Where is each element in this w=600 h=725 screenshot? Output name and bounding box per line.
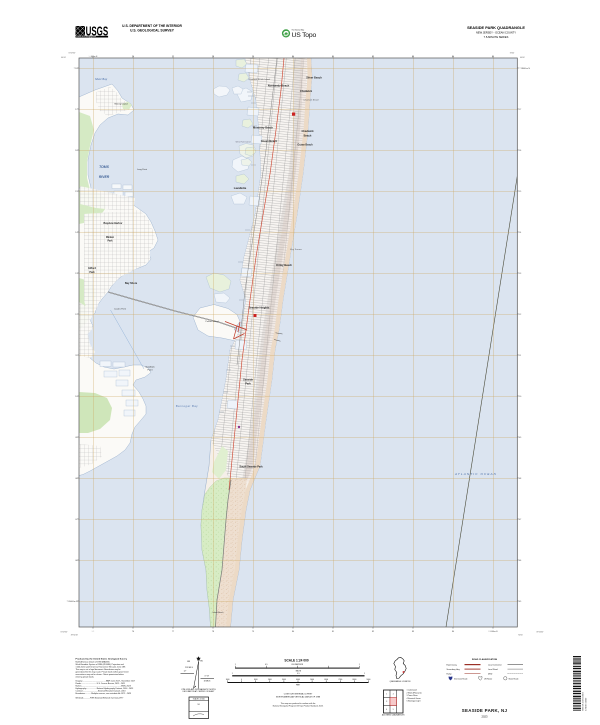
svg-text:2000: 2000 — [268, 679, 272, 681]
svg-text:1: 1 — [386, 694, 387, 696]
svg-text:5000: 5000 — [310, 679, 314, 681]
svg-text:83: 83 — [412, 56, 415, 58]
svg-text:4: 4 — [386, 709, 387, 711]
svg-text:10: 10 — [519, 396, 522, 398]
svg-text:81: 81 — [332, 631, 335, 633]
svg-text:This map was produced to confo: This map was produced to conform with th… — [281, 702, 316, 705]
svg-text:3000: 3000 — [282, 679, 286, 681]
svg-text:Lavallette: Lavallette — [234, 186, 247, 190]
svg-text:0: 0 — [241, 679, 242, 681]
svg-text:4000: 4000 — [296, 679, 300, 681]
svg-text:West Point Island: West Point Island — [236, 141, 252, 144]
svg-text:ROAD CLASSIFICATION: ROAD CLASSIFICATION — [472, 658, 498, 661]
svg-text:3 Toms River: 3 Toms River — [407, 694, 418, 697]
svg-text:U.S. DEPARTMENT OF THE INTERIO: U.S. DEPARTMENT OF THE INTERIOR — [122, 24, 182, 28]
svg-text:17: 17 — [519, 109, 522, 111]
svg-text:FEET: FEET — [296, 685, 300, 687]
svg-text:1: 1 — [364, 673, 365, 675]
svg-text:ATLANTIC OCEAN: ATLANTIC OCEAN — [454, 472, 497, 476]
svg-text:79: 79 — [252, 631, 255, 633]
svg-text:74°00': 74°00' — [510, 53, 515, 55]
svg-text:77: 77 — [172, 56, 175, 58]
svg-text:14: 14 — [519, 232, 522, 234]
svg-text:16: 16 — [519, 150, 522, 152]
svg-text:5 Barnegat Light: 5 Barnegat Light — [407, 700, 421, 703]
svg-text:SEASIDE PARK, NJ: SEASIDE PARK, NJ — [462, 708, 508, 713]
svg-text:Ocean Beach: Ocean Beach — [297, 144, 313, 147]
svg-text:DECLINATION AT CENTER OF SHEET: DECLINATION AT CENTER OF SHEET — [183, 690, 216, 693]
svg-text:84: 84 — [452, 631, 455, 633]
svg-text:Beach: Beach — [304, 134, 312, 138]
svg-text:0° 59´: 0° 59´ — [205, 674, 210, 677]
svg-text:Gilford: Gilford — [88, 267, 96, 270]
svg-text:Bayview Harbor: Bayview Harbor — [104, 222, 123, 225]
svg-text:213 MILS: 213 MILS — [185, 667, 193, 669]
svg-text:74°00': 74°00' — [518, 635, 523, 637]
svg-text:05: 05 — [519, 601, 522, 603]
svg-text:78: 78 — [212, 631, 215, 633]
svg-text:Barnegat Bay: Barnegat Bay — [176, 405, 198, 408]
svg-text:Island Beach: Island Beach — [213, 612, 224, 614]
svg-text:KILOMETERS: KILOMETERS — [292, 664, 304, 666]
svg-text:Produced by the United States: Produced by the United States Geological… — [76, 658, 128, 661]
svg-text:State Route: State Route — [509, 677, 519, 680]
svg-text:78: 78 — [212, 56, 215, 58]
svg-text:Pelican Island: Pelican Island — [206, 321, 220, 323]
svg-text:83: 83 — [412, 631, 415, 633]
svg-text:Goodluck: Goodluck — [145, 367, 155, 369]
svg-text:76: 76 — [132, 631, 135, 633]
svg-text:Monterey Beach: Monterey Beach — [253, 126, 273, 130]
svg-text:81: 81 — [332, 56, 335, 58]
svg-text:SCALE 1:24 000: SCALE 1:24 000 — [284, 659, 308, 663]
svg-text:80: 80 — [292, 631, 295, 633]
svg-text:12: 12 — [519, 314, 522, 316]
svg-text:3: 3 — [386, 701, 387, 703]
svg-text:0.5: 0.5 — [297, 673, 300, 675]
svg-text:CONTOUR INTERVAL 10 FEET: CONTOUR INTERVAL 10 FEET — [284, 693, 313, 696]
svg-text:TOMS: TOMS — [99, 165, 109, 169]
svg-text:80: 80 — [292, 56, 295, 58]
svg-text:77: 77 — [172, 631, 175, 633]
svg-text:07: 07 — [519, 519, 522, 521]
svg-text:Money Island: Money Island — [114, 103, 128, 105]
svg-text:40°00': 40°00' — [520, 57, 525, 59]
svg-text:Bay Shore: Bay Shore — [125, 282, 138, 285]
svg-text:Wetlands.............FWS Natio: Wetlands.............FWS National Wetlan… — [76, 697, 124, 700]
svg-text:Ramp: Ramp — [447, 673, 452, 675]
svg-text:Local Connector: Local Connector — [488, 663, 502, 666]
svg-text:Seaside: Seaside — [243, 378, 253, 382]
svg-text:Secondary Hwy: Secondary Hwy — [447, 668, 460, 671]
svg-text:Minden: Minden — [106, 237, 115, 239]
svg-text:Silver Bay: Silver Bay — [95, 77, 108, 81]
svg-text:7000: 7000 — [338, 679, 342, 681]
svg-text:13: 13 — [519, 273, 522, 275]
svg-text:40°00': 40°00' — [61, 57, 66, 59]
svg-text:NEW JERSEY - OCEAN COUNTY: NEW JERSEY - OCEAN COUNTY — [476, 31, 516, 35]
svg-text:SEASIDE PARK QUADRANGLE: SEASIDE PARK QUADRANGLE — [467, 25, 525, 30]
svg-text:Seaside Heights: Seaside Heights — [249, 306, 270, 310]
svg-text:12°: 12° — [184, 671, 187, 673]
svg-text:National Geospatial Program US: National Geospatial Program US Topo Prod… — [273, 704, 324, 707]
svg-text:74°07'30": 74°07'30" — [60, 632, 68, 634]
svg-text:RIVER: RIVER — [99, 175, 110, 179]
svg-text:⁵⁸⁵000m E: ⁵⁸⁵000m E — [488, 631, 498, 633]
svg-text:⁵⁷⁵: ⁵⁷⁵ — [92, 631, 95, 633]
svg-text:Boundaries............Multiple: Boundaries............Multiple sources; … — [76, 692, 132, 695]
svg-text:1: 1 — [232, 673, 233, 675]
svg-text:US Route: US Route — [484, 677, 492, 680]
svg-text:MILES: MILES — [296, 671, 302, 673]
svg-text:US Topo: US Topo — [292, 32, 317, 39]
svg-text:82: 82 — [372, 631, 375, 633]
svg-text:9 781607 560000: 9 781607 560000 — [586, 698, 588, 711]
svg-text:Chadwick Beach Island: Chadwick Beach Island — [248, 79, 270, 81]
svg-text:39°52'30": 39°52'30" — [71, 635, 79, 637]
svg-text:Expressway: Expressway — [447, 663, 457, 666]
svg-text:84: 84 — [452, 56, 455, 58]
svg-text:⁴⁴18000m N: ⁴⁴18000m N — [519, 68, 531, 70]
svg-text:82: 82 — [372, 56, 375, 58]
svg-text:2 Brick (Pleasant): 2 Brick (Pleasant) — [407, 691, 422, 694]
svg-text:ISBN 978-1-60756-000-0: ISBN 978-1-60756-000-0 — [583, 692, 585, 711]
svg-text:2: 2 — [393, 694, 394, 696]
svg-text:QUADRANGLE LOCATION: QUADRANGLE LOCATION — [390, 680, 412, 683]
svg-text:Chadwick: Chadwick — [301, 129, 314, 133]
svg-text:Interstate Route: Interstate Route — [454, 677, 467, 680]
svg-text:Park: Park — [245, 382, 251, 386]
svg-text:7.5-MINUTE SERIES: 7.5-MINUTE SERIES — [484, 35, 509, 39]
svg-text:4 Keswick Grove: 4 Keswick Grove — [407, 697, 421, 700]
svg-text:4WD: 4WD — [488, 673, 493, 675]
svg-text:Point: Point — [148, 369, 153, 372]
svg-text:Coates Point: Coates Point — [114, 308, 126, 311]
svg-text:39°52'30": 39°52'30" — [536, 632, 544, 634]
svg-text:NORTH AMERICAN VERTICAL DATUM: NORTH AMERICAN VERTICAL DATUM OF 1988 — [276, 696, 321, 699]
svg-text:South Seaside Park: South Seaside Park — [239, 466, 263, 469]
svg-text:1 Lakewood: 1 Lakewood — [407, 690, 417, 692]
svg-text:18 MILS: 18 MILS — [204, 680, 211, 682]
svg-text:1: 1 — [235, 664, 236, 666]
svg-text:Bay Terrace: Bay Terrace — [290, 249, 302, 251]
svg-text:Long Point: Long Point — [137, 168, 147, 171]
svg-text:⁴⁴05000m N: ⁴⁴05000m N — [67, 601, 79, 603]
svg-text:1: 1 — [359, 664, 360, 666]
svg-text:Normandy Beach: Normandy Beach — [268, 84, 290, 88]
svg-text:Ocean Beach: Ocean Beach — [261, 139, 278, 143]
svg-text:Chadwick Beach: Chadwick Beach — [303, 100, 319, 102]
svg-text:Park: Park — [89, 271, 95, 274]
svg-text:15: 15 — [519, 191, 522, 193]
svg-text:85: 85 — [492, 56, 495, 58]
svg-text:06: 06 — [519, 560, 522, 562]
svg-text:8000: 8000 — [353, 679, 357, 681]
svg-text:entering private lands.: entering private lands. — [76, 676, 95, 679]
svg-text:U.S. GEOLOGICAL SURVEY: U.S. GEOLOGICAL SURVEY — [130, 29, 175, 33]
svg-text:1000: 1000 — [226, 679, 230, 681]
svg-text:GN: GN — [200, 661, 203, 663]
svg-text:ADJOINING QUADRANGLES: ADJOINING QUADRANGLES — [382, 714, 405, 717]
svg-text:Silver Beach: Silver Beach — [306, 76, 322, 80]
svg-text:9000: 9000 — [367, 679, 371, 681]
svg-text:Park: Park — [108, 241, 114, 243]
svg-text:6000: 6000 — [324, 679, 328, 681]
svg-text:Chadwick: Chadwick — [300, 89, 313, 93]
svg-text:76: 76 — [132, 56, 135, 58]
svg-text:NJ: NJ — [198, 704, 200, 706]
svg-text:09: 09 — [519, 437, 522, 439]
svg-text:5: 5 — [393, 709, 394, 711]
svg-text:0.5: 0.5 — [265, 664, 268, 666]
svg-text:79: 79 — [252, 56, 255, 58]
svg-text:MN: MN — [187, 661, 190, 663]
svg-text:⁵⁷⁵000m E: ⁵⁷⁵000m E — [89, 56, 99, 58]
svg-text:Local Road: Local Road — [488, 669, 498, 671]
svg-text:Ortley Beach: Ortley Beach — [276, 263, 292, 267]
svg-text:74°07'30": 74°07'30" — [68, 53, 76, 55]
svg-text:1000: 1000 — [254, 679, 258, 681]
svg-text:08: 08 — [519, 478, 522, 480]
svg-text:11: 11 — [519, 355, 522, 357]
svg-text:2023: 2023 — [482, 714, 488, 718]
